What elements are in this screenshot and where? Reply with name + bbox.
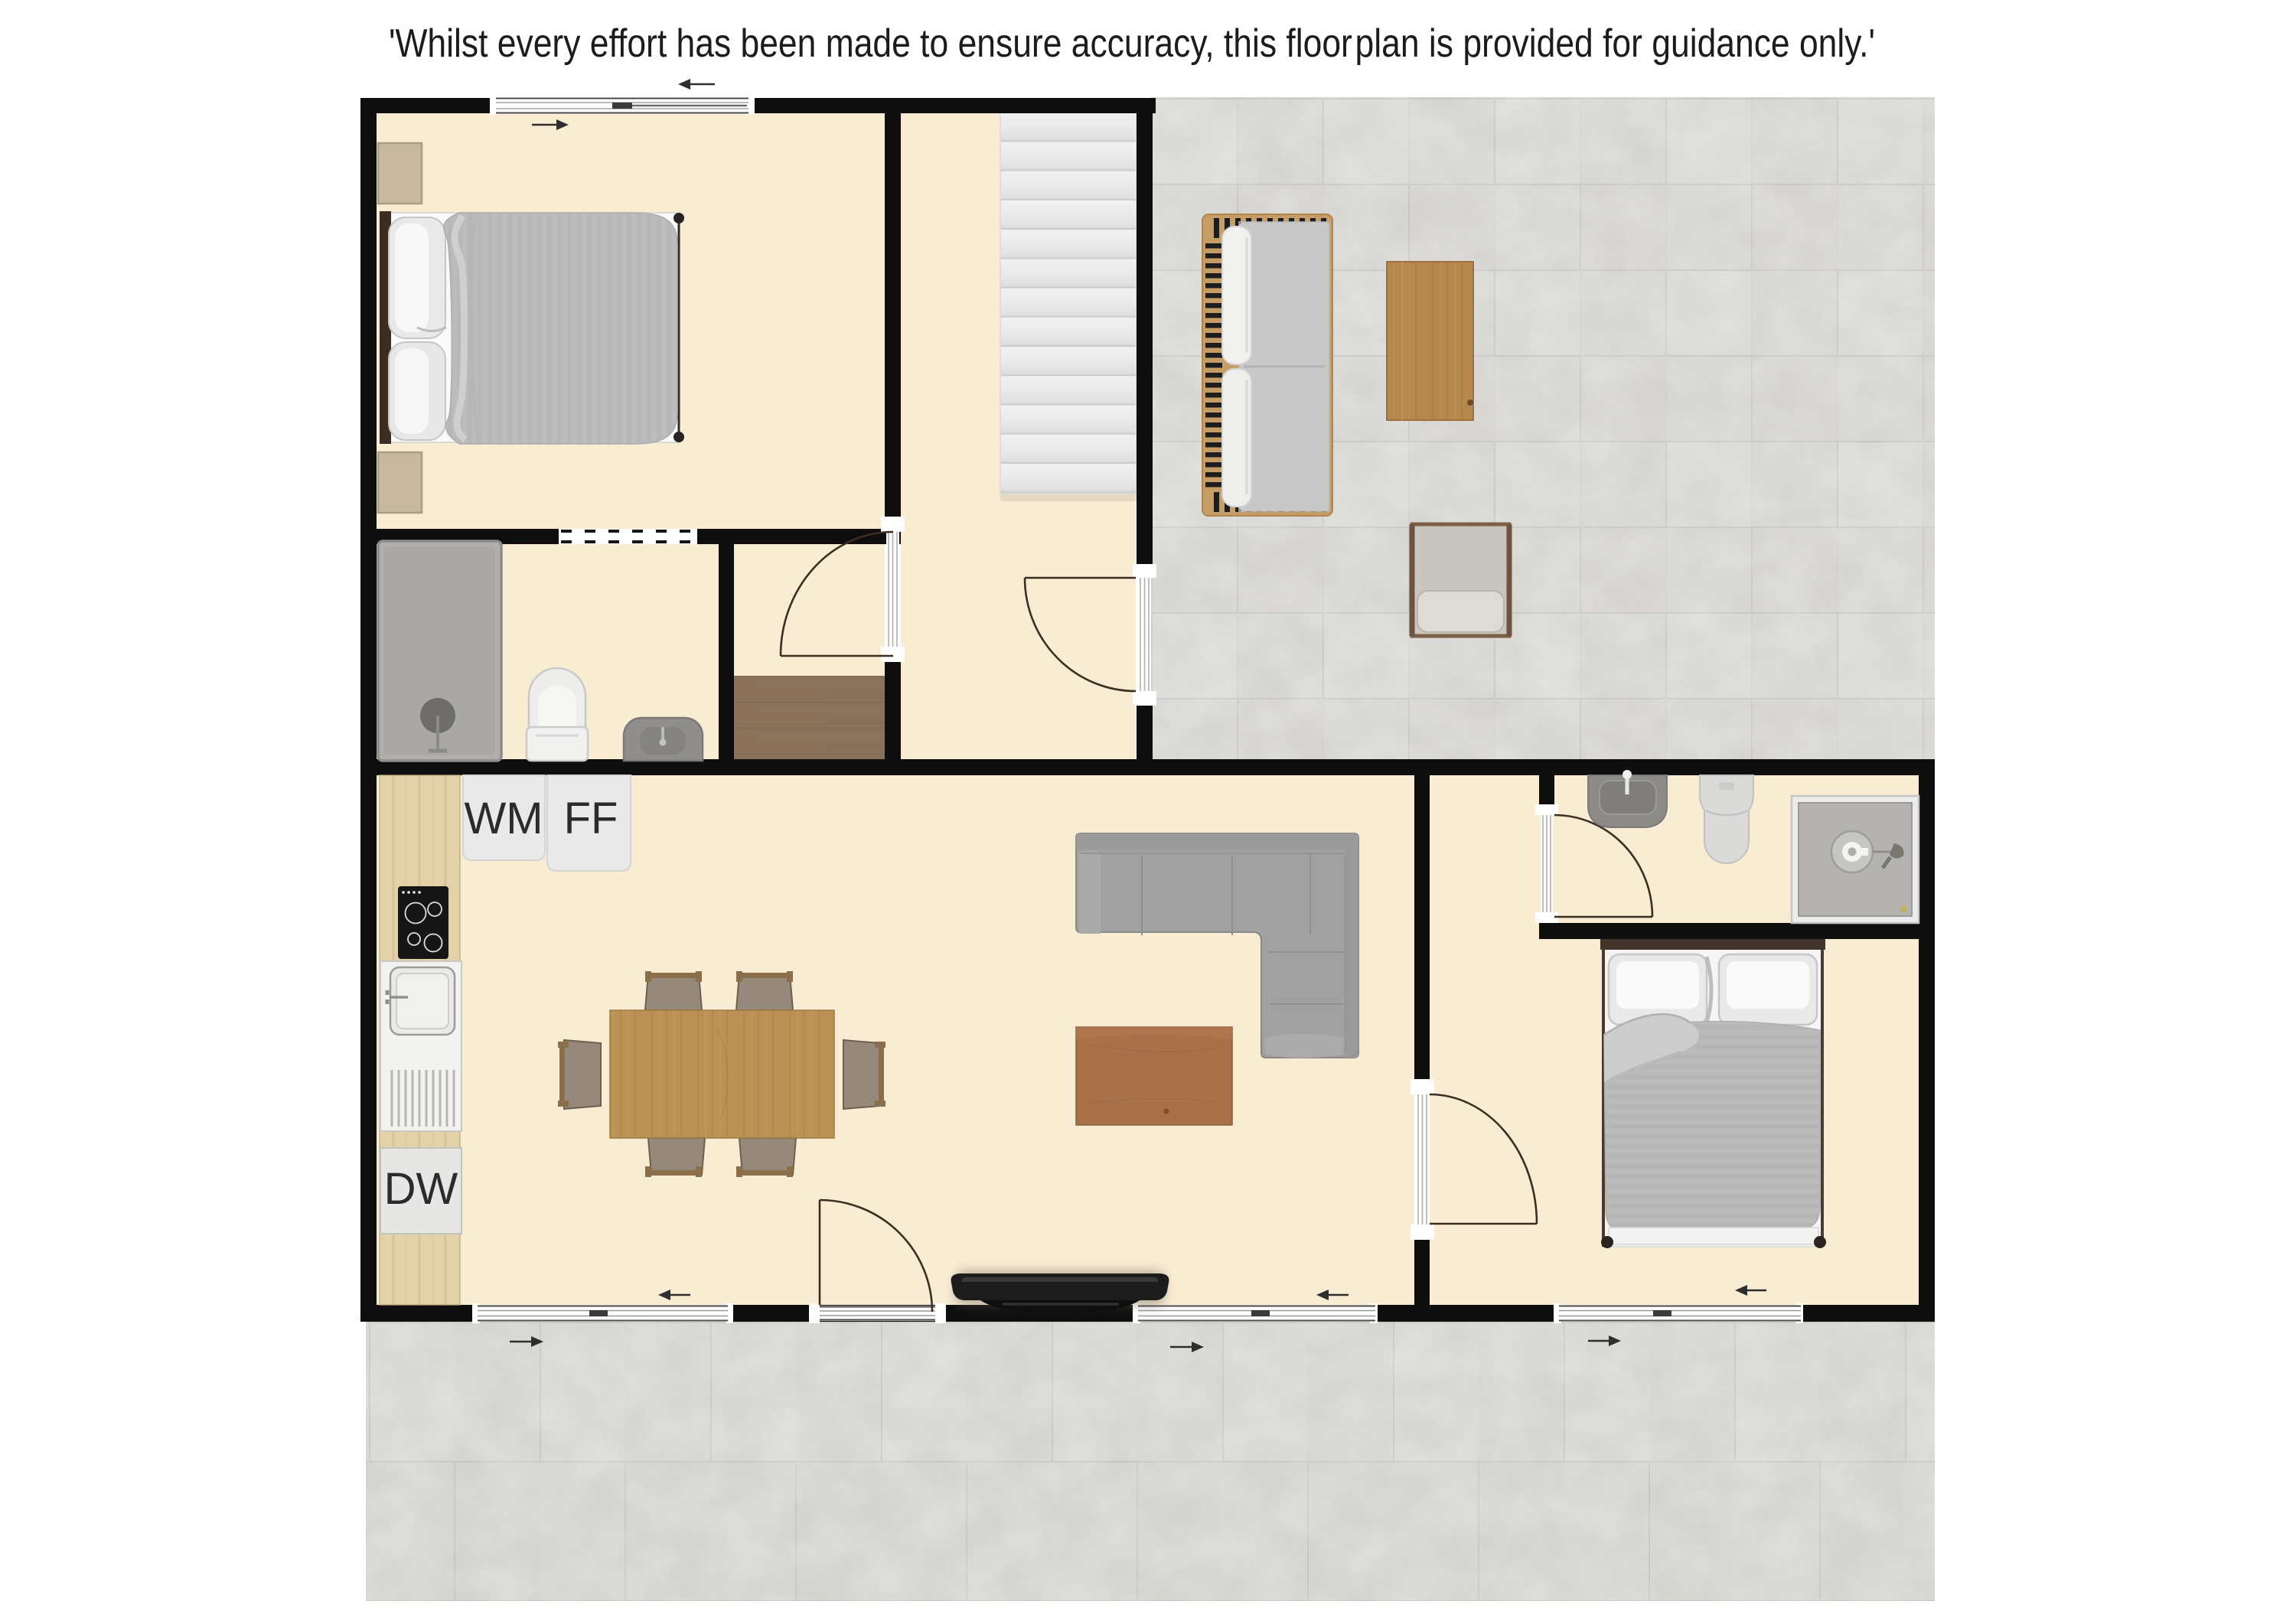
svg-text:DW: DW [384,1164,458,1214]
svg-text:FF: FF [564,794,618,843]
svg-text:'Whilst every effort has been: 'Whilst every effort has been made to en… [389,21,1875,66]
svg-text:WM: WM [464,794,543,843]
